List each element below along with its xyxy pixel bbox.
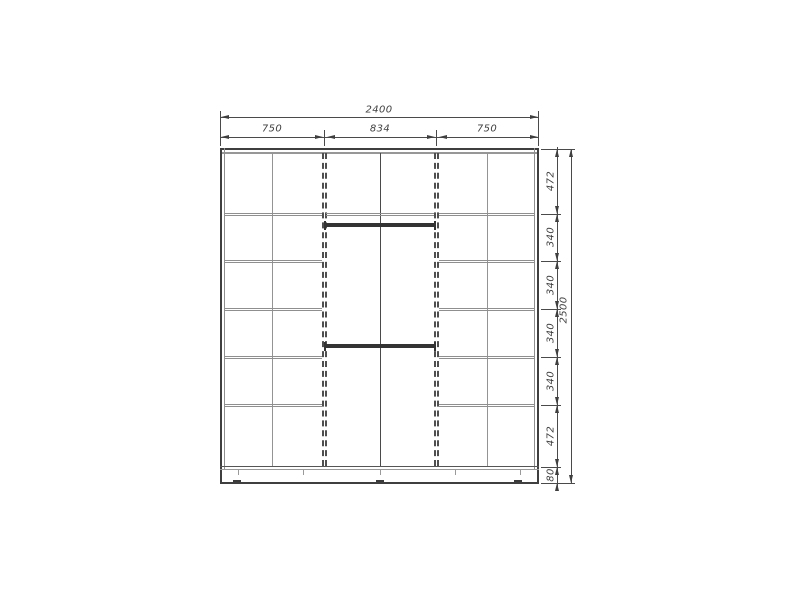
dim-label-right-section-width: 750 <box>477 124 497 135</box>
arrowhead <box>439 135 447 139</box>
rod-bracket <box>324 221 326 230</box>
arrowhead <box>555 206 559 214</box>
arrowhead <box>555 261 559 269</box>
dim-label-height-seg-2: 340 <box>546 227 557 247</box>
shelf-line <box>225 308 322 311</box>
rod-bracket <box>434 342 436 351</box>
arrowhead <box>555 397 559 405</box>
dim-label-height-seg-5: 340 <box>546 371 557 391</box>
section-divider-left <box>322 153 327 466</box>
dim-label-height-seg-6: 472 <box>546 426 557 446</box>
dim-label-height-seg-1: 472 <box>546 171 557 191</box>
plinth-tick <box>520 470 521 475</box>
arrowhead <box>530 115 538 119</box>
arrowhead <box>427 135 435 139</box>
dim-label-overall-height: 2500 <box>559 296 570 323</box>
plinth-foot <box>233 480 241 482</box>
arrowhead <box>569 475 573 483</box>
shelf-line <box>225 404 322 407</box>
shelf-line <box>439 213 534 216</box>
arrowhead <box>327 135 335 139</box>
hanging-rod <box>326 223 434 227</box>
plinth-foot <box>514 480 522 482</box>
shelf-line <box>439 260 534 263</box>
arrowhead <box>569 149 573 157</box>
dim-label-middle-section-width: 834 <box>370 124 390 135</box>
arrowhead <box>555 149 559 157</box>
plinth-tick <box>238 470 239 475</box>
plinth-tick <box>380 470 381 475</box>
dimension-line <box>220 117 539 118</box>
arrowhead <box>555 483 559 491</box>
extension-line <box>436 130 437 146</box>
right-side-panel <box>534 148 539 470</box>
dim-label-left-section-width: 750 <box>262 124 282 135</box>
plinth-foot <box>376 480 384 482</box>
rod-bracket <box>434 221 436 230</box>
arrowhead <box>555 459 559 467</box>
middle-section-center-divider <box>380 153 381 466</box>
arrowhead <box>555 253 559 261</box>
arrowhead <box>555 357 559 365</box>
shelf-line <box>225 260 322 263</box>
shelf-line <box>326 213 434 216</box>
arrowhead <box>221 135 229 139</box>
dim-label-plinth-height: 80 <box>546 468 557 482</box>
shelf-line <box>439 404 534 407</box>
extension-line <box>324 130 325 146</box>
arrowhead <box>530 135 538 139</box>
dim-label-overall-width: 2400 <box>365 105 392 116</box>
shelf-line <box>225 356 322 359</box>
arrowhead <box>221 115 229 119</box>
dim-label-height-seg-3: 340 <box>546 275 557 295</box>
arrowhead <box>315 135 323 139</box>
hanging-rod <box>326 344 434 348</box>
dim-label-height-seg-4: 340 <box>546 323 557 343</box>
arrowhead <box>555 349 559 357</box>
plinth-tick <box>303 470 304 475</box>
rod-bracket <box>324 342 326 351</box>
arrowhead <box>555 405 559 413</box>
shelf-line <box>439 356 534 359</box>
shelf-line <box>439 308 534 311</box>
dimension-line <box>571 149 572 483</box>
dimension-line <box>220 137 539 138</box>
drawing-canvas: 2400 750 834 750 <box>0 0 800 600</box>
plinth-tick <box>455 470 456 475</box>
arrowhead <box>555 214 559 222</box>
shelf-line <box>225 213 322 216</box>
